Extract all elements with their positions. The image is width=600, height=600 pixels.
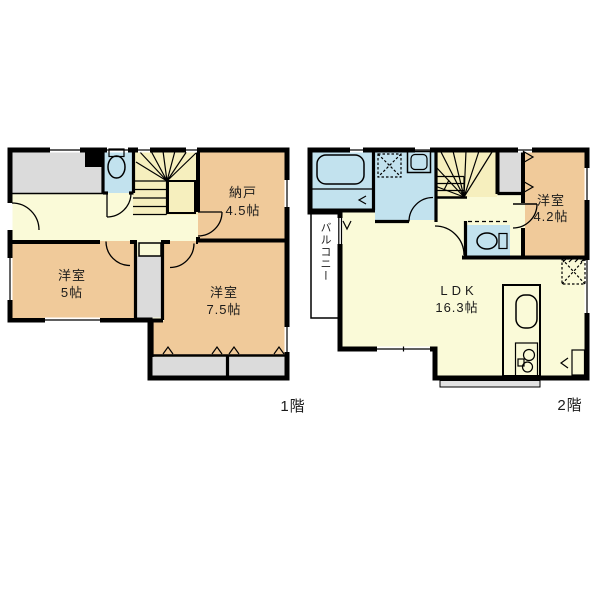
- first-floor-plan: 納戸 4.5帖 洋室 5帖 洋室 7.5帖 1階: [8, 148, 306, 416]
- room-bath: [313, 153, 374, 210]
- label-bedroom5-name: 洋室: [58, 268, 86, 283]
- label-bedroom42-name: 洋室: [537, 193, 565, 208]
- room-washroom: [375, 153, 435, 221]
- window-sill-2f: [440, 381, 540, 388]
- floorplan-svg: 納戸 4.5帖 洋室 5帖 洋室 7.5帖 1階: [0, 0, 600, 600]
- floorplan-canvas: 納戸 4.5帖 洋室 5帖 洋室 7.5帖 1階: [0, 0, 600, 600]
- label-balcony: バルコニー: [319, 222, 332, 282]
- closet-2f: [500, 153, 522, 193]
- label-bedroom42-area: 4.2帖: [533, 209, 568, 224]
- room-toilet-1f: [103, 153, 133, 194]
- wall-pillar: [85, 150, 103, 167]
- closet-1f-right: [229, 357, 285, 376]
- label-storage-name: 納戸: [229, 185, 257, 200]
- label-bedroom5-area: 5帖: [61, 285, 83, 300]
- label-storage-area: 4.5帖: [225, 203, 260, 218]
- closet-1f-left: [153, 357, 227, 376]
- label-ldk-name: LDK: [440, 283, 477, 298]
- stairs-1f: [133, 153, 198, 216]
- label-second-floor: 2階: [557, 397, 582, 414]
- second-floor-plan: 洋室 4.2帖 LDK 16.3帖 バルコニー 2階: [310, 148, 590, 415]
- entrance-door-opening: [8, 203, 13, 230]
- label-ldk-area: 16.3帖: [435, 300, 478, 315]
- label-first-floor: 1階: [280, 398, 305, 415]
- label-bedroom75-name: 洋室: [210, 285, 238, 300]
- label-bedroom75-area: 7.5帖: [206, 302, 241, 317]
- room-toilet-2f: [467, 225, 510, 257]
- utility-strip: [137, 256, 161, 318]
